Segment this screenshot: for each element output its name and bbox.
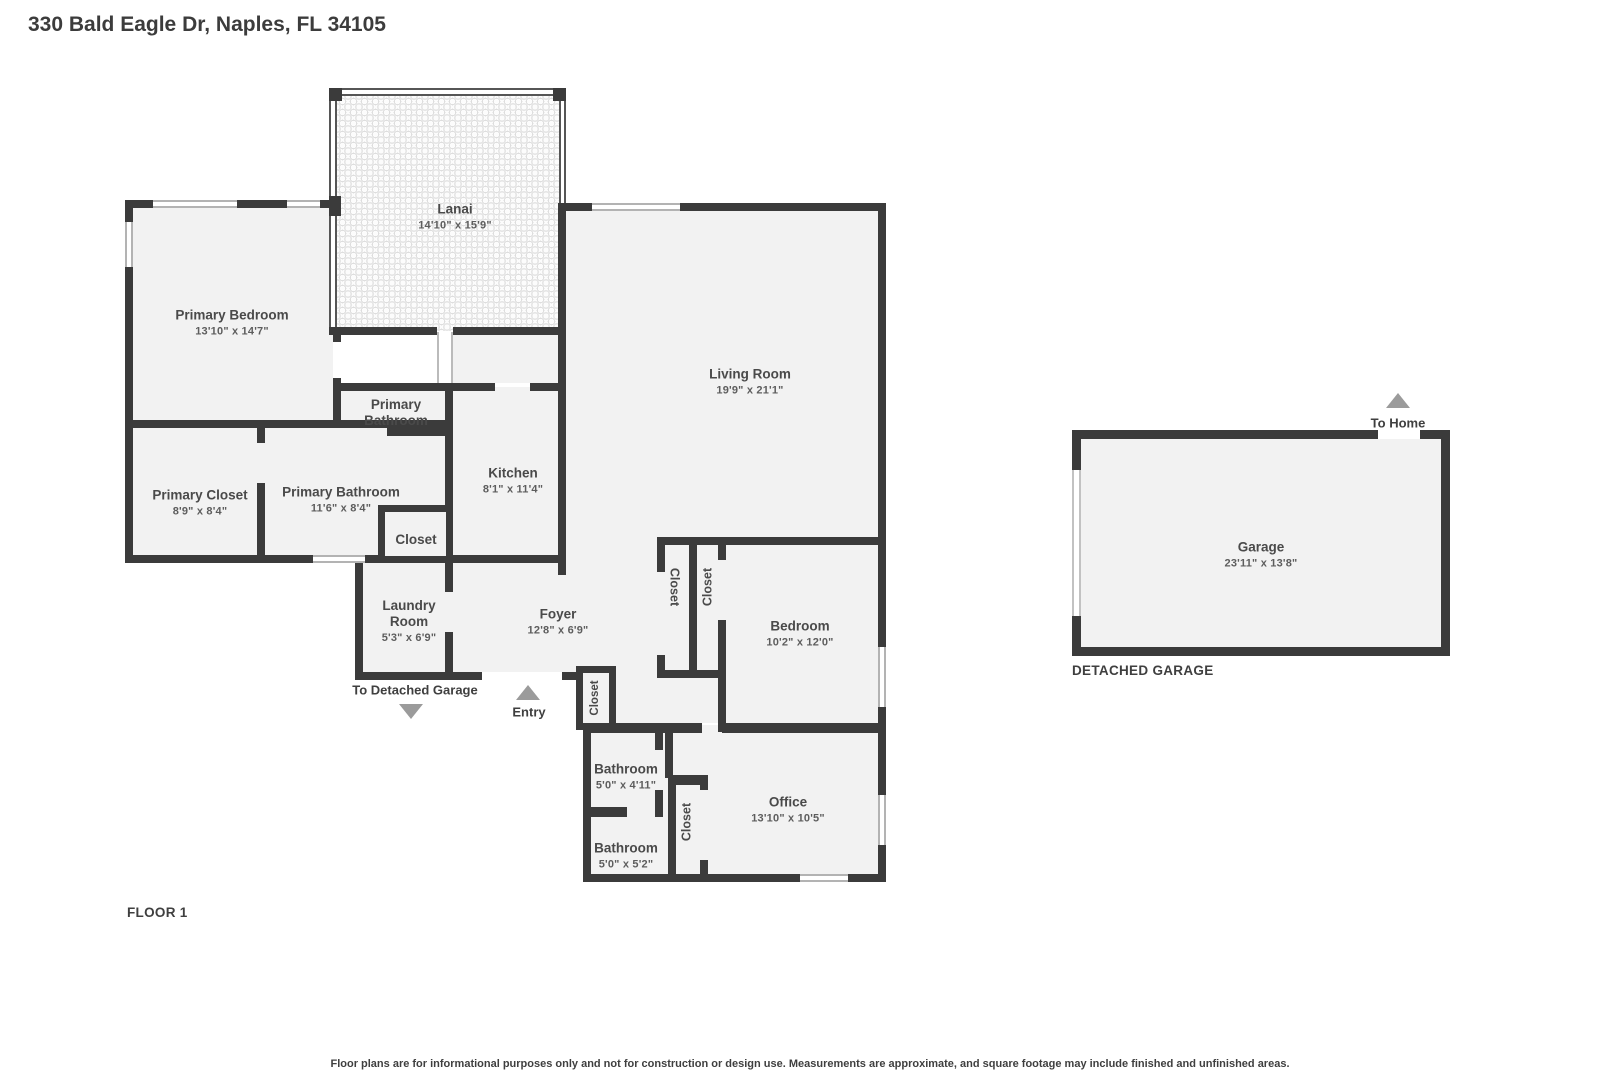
wall [329,327,437,335]
lanai-screen-right [559,95,566,205]
entry-door-opening [482,672,562,682]
wall [1441,430,1450,656]
room-label-closet-1: Closet [667,568,682,606]
to-home-label: To Home [1371,416,1426,431]
wall [1072,430,1081,470]
room-label-bedroom: Bedroom 10'2" x 12'0" [766,618,833,649]
room-label-hall-closet: Closet [395,532,436,548]
lanai-corner-tr [553,88,566,101]
wall [657,537,886,545]
wall [583,723,591,882]
wall [700,775,708,790]
door-opening [257,443,265,483]
window [153,200,237,208]
wall [445,563,453,592]
room-label-foyer: Foyer 12'8" x 6'9" [528,606,589,637]
wall [125,420,133,563]
wall [878,203,886,710]
room-label-bathroom-2: Bathroom 5'0" x 5'2" [594,840,658,871]
wall [665,733,673,778]
room-label-kitchen: Kitchen 8'1" x 11'4" [483,465,543,496]
lanai-corridor [437,332,453,385]
wall [445,555,566,563]
wall [657,537,665,572]
wall [453,327,566,335]
passage-fill [453,335,566,383]
window [878,795,886,845]
wall [453,383,495,391]
wall [668,775,676,874]
up-arrow-icon [1386,393,1410,408]
wall [657,670,726,678]
wall [1072,647,1450,656]
room-label-office-closet: Closet [680,803,695,841]
wall [355,555,363,680]
up-arrow-icon [516,685,540,700]
wall [1072,616,1081,656]
down-arrow-icon [399,704,423,719]
wall [558,203,566,575]
room-label-primary-bedroom: Primary Bedroom 13'10" x 14'7" [175,307,288,338]
garage-door-opening [1072,470,1081,616]
to-home-door-opening [1378,430,1420,439]
wall [689,545,697,678]
wall [718,545,726,560]
lanai-corner-tl [329,88,342,101]
room-label-primary-bathroom: Primary Bathroom 11'6" x 8'4" [282,484,400,515]
room-label-entry-closet: Closet [589,680,603,715]
room-label-garage: Garage 23'11" x 13'8" [1225,539,1298,570]
floor-plan: 330 Bald Eagle Dr, Naples, FL 34105 [0,0,1620,1080]
wall [655,733,663,750]
room-label-closet-2: Closet [701,568,716,606]
door-opening [333,342,341,378]
wall [355,672,482,680]
page-title: 330 Bald Eagle Dr, Naples, FL 34105 [28,13,386,37]
room-label-laundry-room: Laundry Room 5'3" x 6'9" [369,598,449,646]
room-label-lanai: Lanai 14'10" x 15'9" [418,201,492,232]
door-opening [627,807,655,817]
wall [257,420,265,563]
entry-label: Entry [512,705,545,720]
room-label-primary-bathroom-upper: Primary Bathroom [351,397,441,429]
wall [337,383,453,391]
room-label-bathroom-1: Bathroom 5'0" x 4'11" [594,761,658,792]
window [800,874,848,882]
wall [722,723,886,733]
window [125,222,133,267]
to-detached-garage-label: To Detached Garage [352,683,477,698]
room-label-office: Office 13'10" x 10'5" [751,794,825,825]
floor-label: FLOOR 1 [127,905,188,920]
window [592,203,680,211]
window [878,647,886,707]
wall [700,860,708,874]
lanai-screen-top [329,88,566,96]
wall [387,428,453,436]
window [313,555,365,563]
window [287,200,320,208]
room-label-primary-closet: Primary Closet 8'9" x 8'4" [152,487,247,518]
room-label-living-room: Living Room 19'9" x 21'1" [709,366,791,397]
disclaimer-text: Floor plans are for informational purpos… [0,1058,1620,1070]
detached-garage-label: DETACHED GARAGE [1072,663,1214,678]
